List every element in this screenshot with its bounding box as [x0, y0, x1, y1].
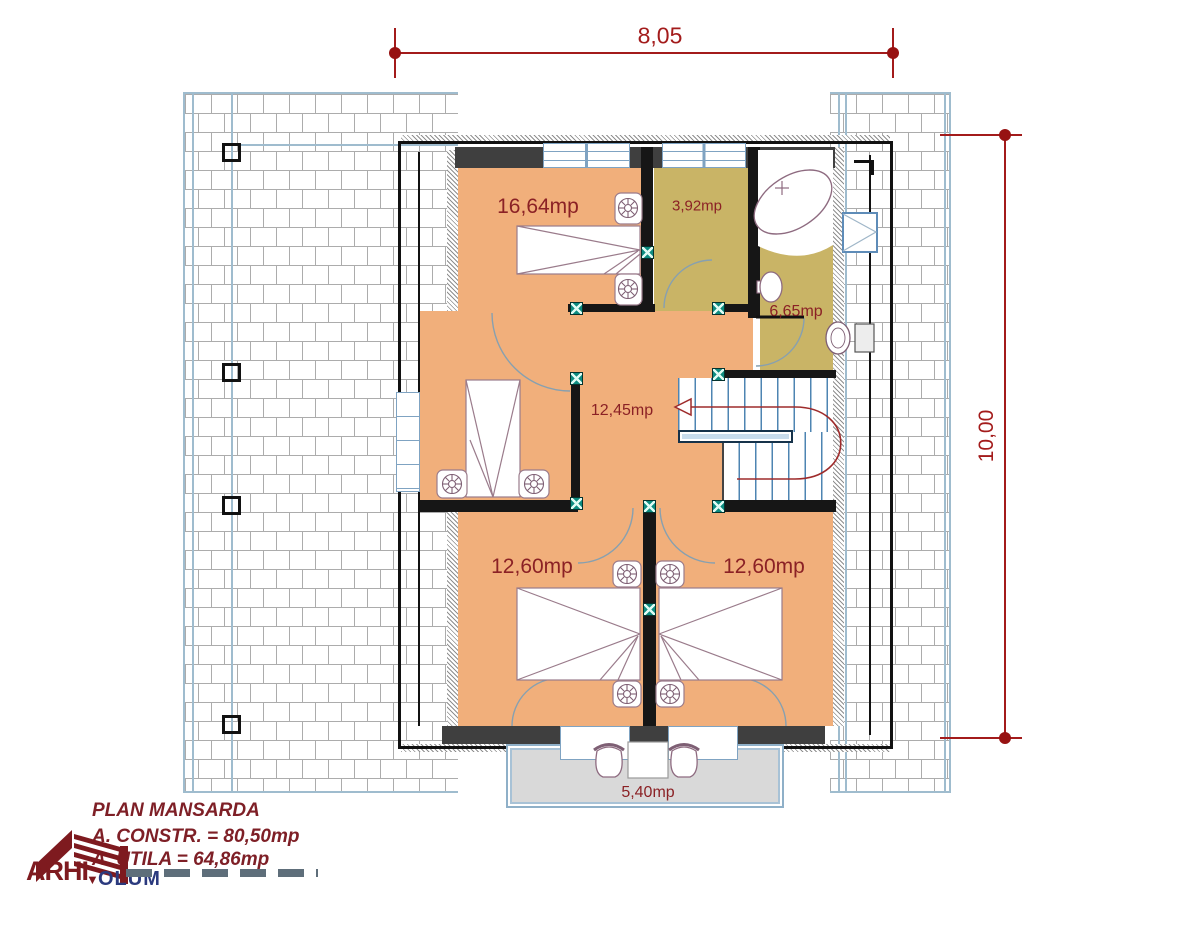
roof-hatch-icon [222, 363, 241, 382]
wall-segment [712, 370, 836, 378]
room-label-hall: 12,45mp [591, 402, 653, 420]
wall-segment [571, 378, 580, 508]
knee-wall [833, 147, 844, 726]
dimension-line-top [395, 52, 893, 54]
room-dressing-floor [654, 150, 750, 315]
column-marker-icon [641, 246, 654, 259]
wall-segment [420, 500, 578, 512]
roof-edge-line [944, 92, 946, 793]
column-marker-icon [712, 500, 725, 513]
roof-hatch-icon [222, 143, 241, 162]
roof-hatch-icon [222, 496, 241, 515]
room-label-bedroom-master: 16,64mp [497, 195, 579, 219]
room-label-balcony: 5,40mp [621, 784, 674, 802]
room-label-bathroom: 6,65mp [769, 303, 822, 321]
window [543, 143, 630, 168]
dimension-endpoint [999, 732, 1011, 744]
column-marker-icon [712, 368, 725, 381]
wall-segment [455, 147, 543, 168]
roof-edge-line [192, 92, 194, 793]
room-label-bedroom-right: 12,60mp [723, 555, 805, 579]
balcony-door-opening [668, 726, 738, 760]
room-bedroom-left-floor [458, 498, 643, 726]
wall-segment [715, 500, 836, 512]
column-marker-icon [570, 497, 583, 510]
logo-v-icon: ▼ [86, 872, 99, 887]
wall-segment [643, 512, 656, 726]
plan-title: PLAN MANSARDA [92, 800, 260, 822]
column-marker-icon [570, 372, 583, 385]
room-bedroom-master-floor [458, 150, 641, 311]
roof-edge-line [231, 92, 233, 793]
stair-edge [722, 432, 724, 508]
room-label-bedroom-left: 12,60mp [491, 555, 573, 579]
floor-plan: 16,64mp 3,92mp 6,65mp 12,45mp 12,60mp 12… [0, 0, 1200, 930]
room-bedroom-right-floor [656, 498, 833, 726]
stair-lower-flight [722, 432, 833, 508]
logo: ARHI ▼ OLUM [20, 824, 320, 908]
stair-railing [678, 430, 793, 443]
wall-segment [641, 147, 653, 311]
column-marker-icon [712, 302, 725, 315]
dimension-height-label: 10,00 [975, 410, 999, 463]
title-separator-line [126, 869, 318, 877]
knee-wall [447, 150, 458, 311]
wall-segment [738, 726, 825, 744]
dimension-endpoint [389, 47, 401, 59]
window [396, 392, 420, 492]
wall-segment [442, 726, 560, 744]
dimension-line-right [1004, 135, 1006, 738]
wall-segment [725, 304, 760, 312]
room-bathroom-floor [760, 150, 833, 371]
logo-text-arhi: ARHI [26, 856, 88, 887]
dimension-endpoint [887, 47, 899, 59]
wall-segment [748, 147, 760, 318]
balcony-door-opening [560, 726, 630, 760]
knee-wall [447, 508, 458, 726]
dimension-width-label: 8,05 [638, 23, 683, 50]
column-marker-icon [570, 302, 583, 315]
dimension-endpoint [999, 129, 1011, 141]
column-marker-icon [643, 500, 656, 513]
wall-segment [630, 726, 668, 744]
eaves-line [869, 155, 871, 735]
roof-hatch-icon [222, 715, 241, 734]
room-label-dressing: 3,92mp [672, 198, 722, 215]
stair-upper-flight [678, 378, 833, 432]
column-marker-icon [643, 603, 656, 616]
window [662, 143, 746, 168]
